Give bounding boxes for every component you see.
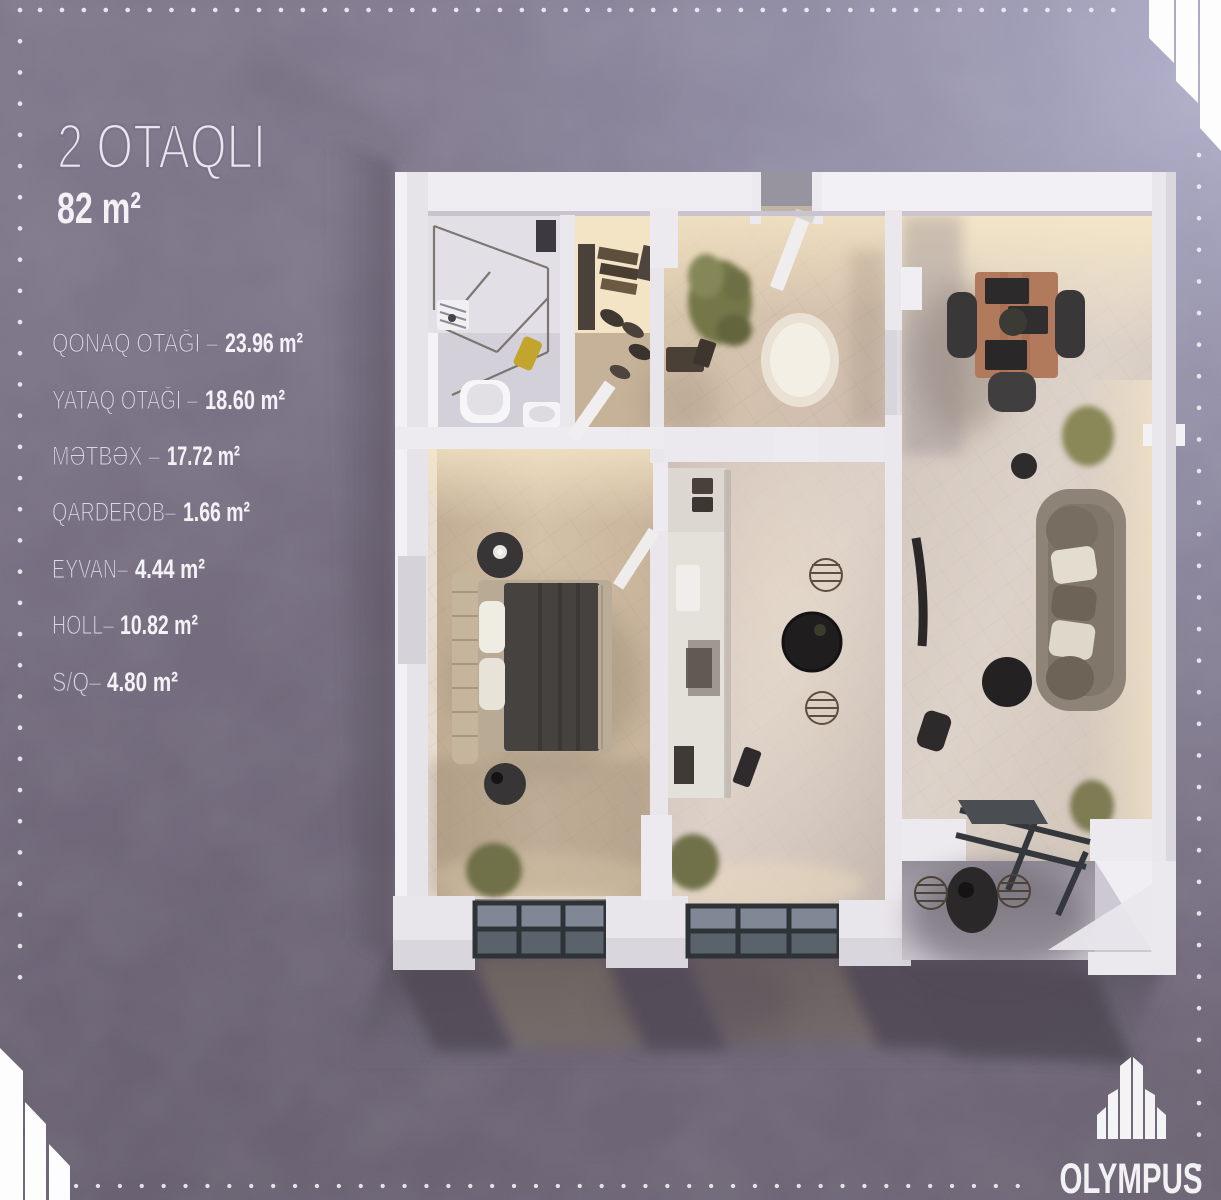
svg-text:OLYMPUS: OLYMPUS — [1060, 1155, 1203, 1200]
svg-text:EYVAN–: EYVAN– — [52, 554, 128, 584]
svg-text:2 OTAQLI: 2 OTAQLI — [57, 112, 266, 182]
svg-text:4.80 m²: 4.80 m² — [107, 667, 178, 697]
svg-text:YATAQ OTAĞI –: YATAQ OTAĞI – — [52, 384, 198, 415]
svg-text:18.60 m²: 18.60 m² — [205, 385, 285, 415]
svg-text:HOLL–: HOLL– — [52, 610, 114, 640]
svg-text:MƏTBƏX –: MƏTBƏX – — [52, 441, 160, 471]
svg-text:QONAQ OTAĞI –: QONAQ OTAĞI – — [52, 327, 218, 358]
svg-text:17.72 m²: 17.72 m² — [167, 441, 240, 471]
svg-text:4.44 m²: 4.44 m² — [135, 554, 205, 584]
svg-text:QARDEROB–: QARDEROB– — [52, 497, 176, 527]
svg-text:1.66 m²: 1.66 m² — [183, 497, 250, 527]
svg-text:23.96 m²: 23.96 m² — [225, 328, 303, 358]
svg-text:82 m²: 82 m² — [57, 184, 141, 233]
svg-text:10.82 m²: 10.82 m² — [120, 610, 198, 640]
svg-text:S/Q–: S/Q– — [52, 667, 101, 697]
